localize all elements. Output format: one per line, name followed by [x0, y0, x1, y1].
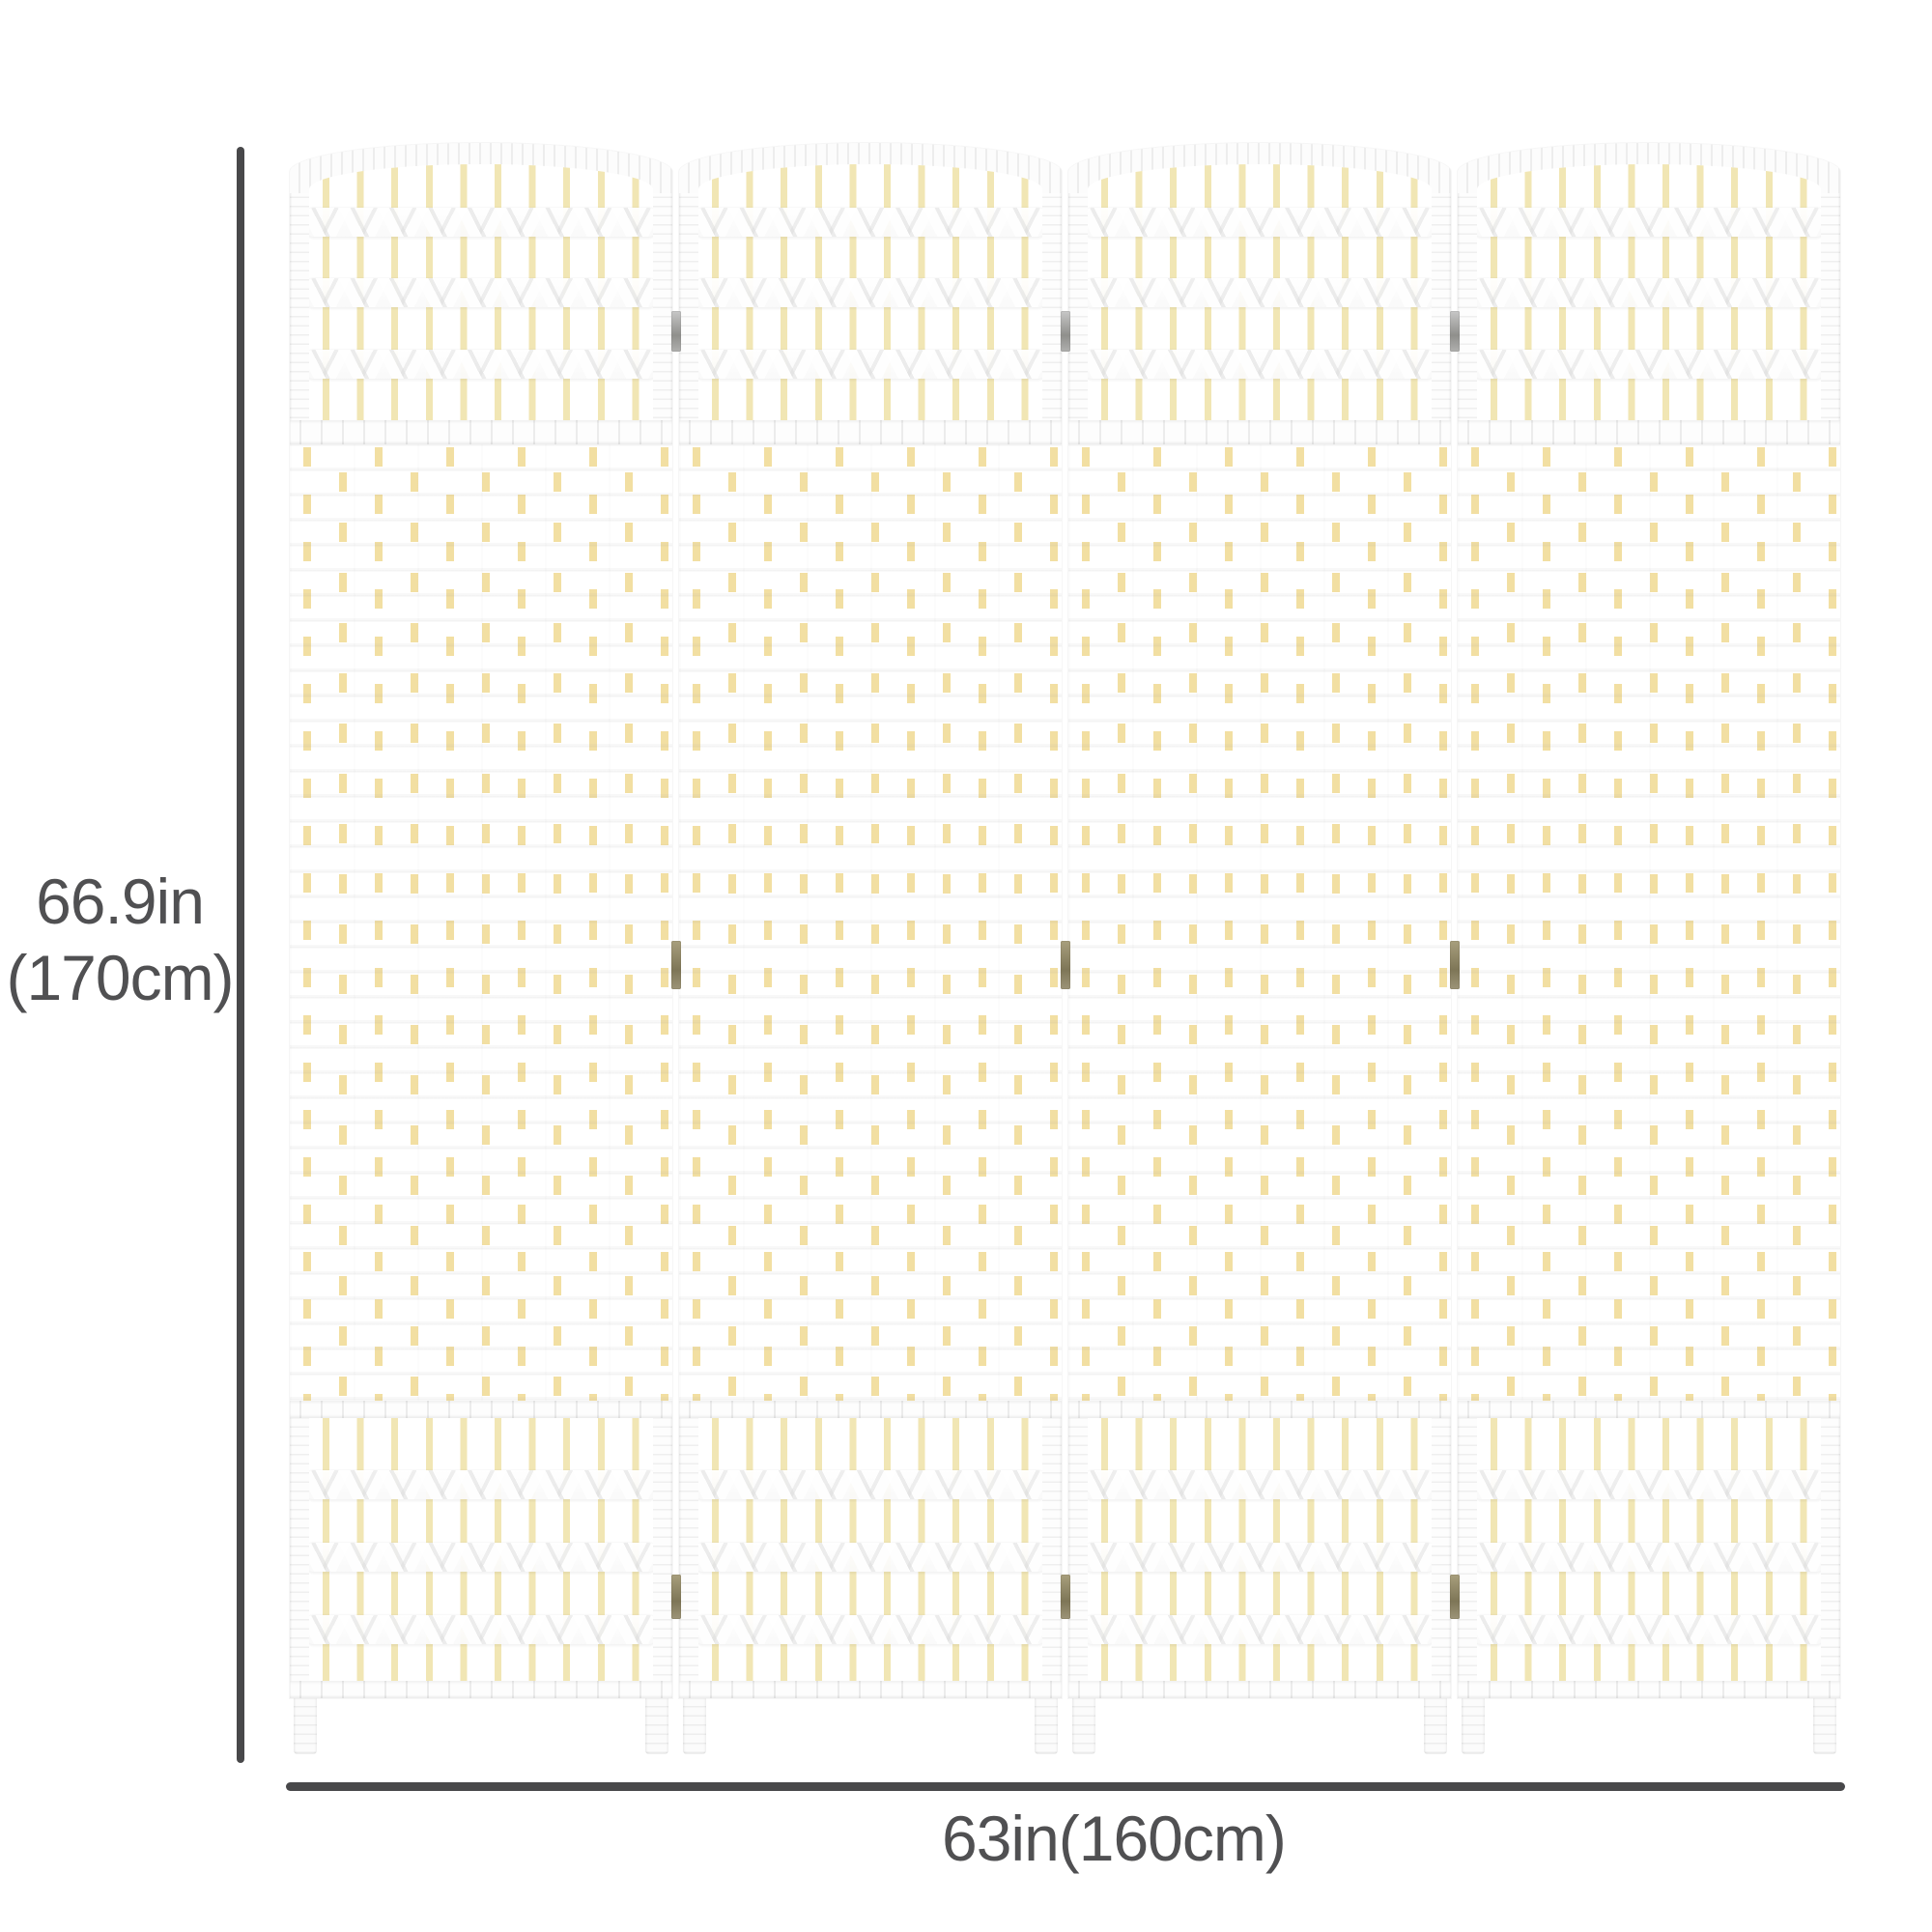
weave-band	[1088, 1543, 1432, 1572]
weave-band	[309, 278, 653, 307]
panel-hinge	[1061, 1575, 1070, 1619]
panel-rail	[290, 420, 672, 444]
weave-texture	[1068, 444, 1451, 1401]
panel-top-lattice	[698, 164, 1042, 420]
room-divider	[290, 143, 1840, 1756]
weave-band	[1477, 278, 1821, 307]
weave-band	[1088, 350, 1432, 379]
weave-band	[1477, 1470, 1821, 1499]
panel-foot-right	[1813, 1698, 1836, 1754]
divider-panel-1	[290, 143, 672, 1756]
weave-band	[698, 1543, 1042, 1572]
weave-texture	[679, 444, 1062, 1401]
weave-texture	[290, 444, 672, 1401]
panel-hinge	[671, 1575, 681, 1619]
weave-band	[1088, 1470, 1432, 1499]
panel-hinge	[671, 311, 681, 352]
panel-top-lattice	[309, 164, 653, 420]
panel-rail	[679, 1681, 1062, 1698]
panel-hinge	[1450, 1575, 1460, 1619]
panel-foot-right	[1035, 1698, 1058, 1754]
panel-hinge	[1061, 941, 1070, 989]
panel-rail	[679, 1401, 1062, 1418]
panel-rail	[1458, 1401, 1840, 1418]
product-dimension-diagram: 66.9in (170cm) 63in(160cm)	[0, 0, 1932, 1932]
panel-foot-left	[1072, 1698, 1095, 1754]
panel-hinge	[1450, 311, 1460, 352]
panel-hinge	[1061, 311, 1070, 352]
panel-rail	[679, 420, 1062, 444]
panel-frame	[1068, 143, 1451, 1698]
panel-bottom-lattice	[698, 1418, 1042, 1681]
panel-top-lattice	[1088, 164, 1432, 420]
weave-band	[1088, 208, 1432, 237]
panel-hinge	[1450, 941, 1460, 989]
panel-rail	[1458, 420, 1840, 444]
panel-foot-left	[294, 1698, 317, 1754]
weave-band	[1088, 1615, 1432, 1644]
panel-weave-field	[290, 444, 672, 1401]
panel-bottom-lattice	[1477, 1418, 1821, 1681]
panel-weave-field	[1458, 444, 1840, 1401]
weave-band	[1477, 350, 1821, 379]
height-dimension-label: 66.9in (170cm)	[0, 864, 240, 1016]
panel-frame	[290, 143, 672, 1698]
weave-band	[309, 1615, 653, 1644]
weave-band	[1477, 208, 1821, 237]
height-label-inches: 66.9in	[0, 864, 240, 940]
panel-rail	[1068, 420, 1451, 444]
panel-foot-left	[683, 1698, 706, 1754]
weave-band	[698, 350, 1042, 379]
weave-band	[309, 1543, 653, 1572]
divider-panel-4	[1458, 143, 1840, 1756]
panel-top-lattice	[1477, 164, 1821, 420]
panel-frame	[1458, 143, 1840, 1698]
weave-band	[309, 1470, 653, 1499]
panel-rail	[1068, 1681, 1451, 1698]
weave-band	[1477, 1543, 1821, 1572]
weave-band	[698, 278, 1042, 307]
weave-band	[309, 350, 653, 379]
panel-foot-left	[1462, 1698, 1485, 1754]
panel-frame	[679, 143, 1062, 1698]
panel-rail	[1458, 1681, 1840, 1698]
weave-band	[698, 1615, 1042, 1644]
weave-texture	[1458, 444, 1840, 1401]
panel-foot-right	[645, 1698, 668, 1754]
panel-weave-field	[1068, 444, 1451, 1401]
panel-rail	[1068, 1401, 1451, 1418]
panel-rail	[290, 1401, 672, 1418]
width-dimension-label: 63in(160cm)	[942, 1804, 1286, 1872]
divider-panel-3	[1068, 143, 1451, 1756]
panel-hinge	[671, 941, 681, 989]
weave-band	[309, 208, 653, 237]
height-label-cm: (170cm)	[0, 940, 240, 1016]
width-dimension-line	[286, 1782, 1845, 1791]
panel-bottom-lattice	[1088, 1418, 1432, 1681]
weave-band	[1477, 1615, 1821, 1644]
weave-band	[1088, 278, 1432, 307]
divider-panel-2	[679, 143, 1062, 1756]
weave-band	[698, 208, 1042, 237]
panel-weave-field	[679, 444, 1062, 1401]
panel-rail	[290, 1681, 672, 1698]
weave-band	[698, 1470, 1042, 1499]
panel-foot-right	[1424, 1698, 1447, 1754]
panel-bottom-lattice	[309, 1418, 653, 1681]
